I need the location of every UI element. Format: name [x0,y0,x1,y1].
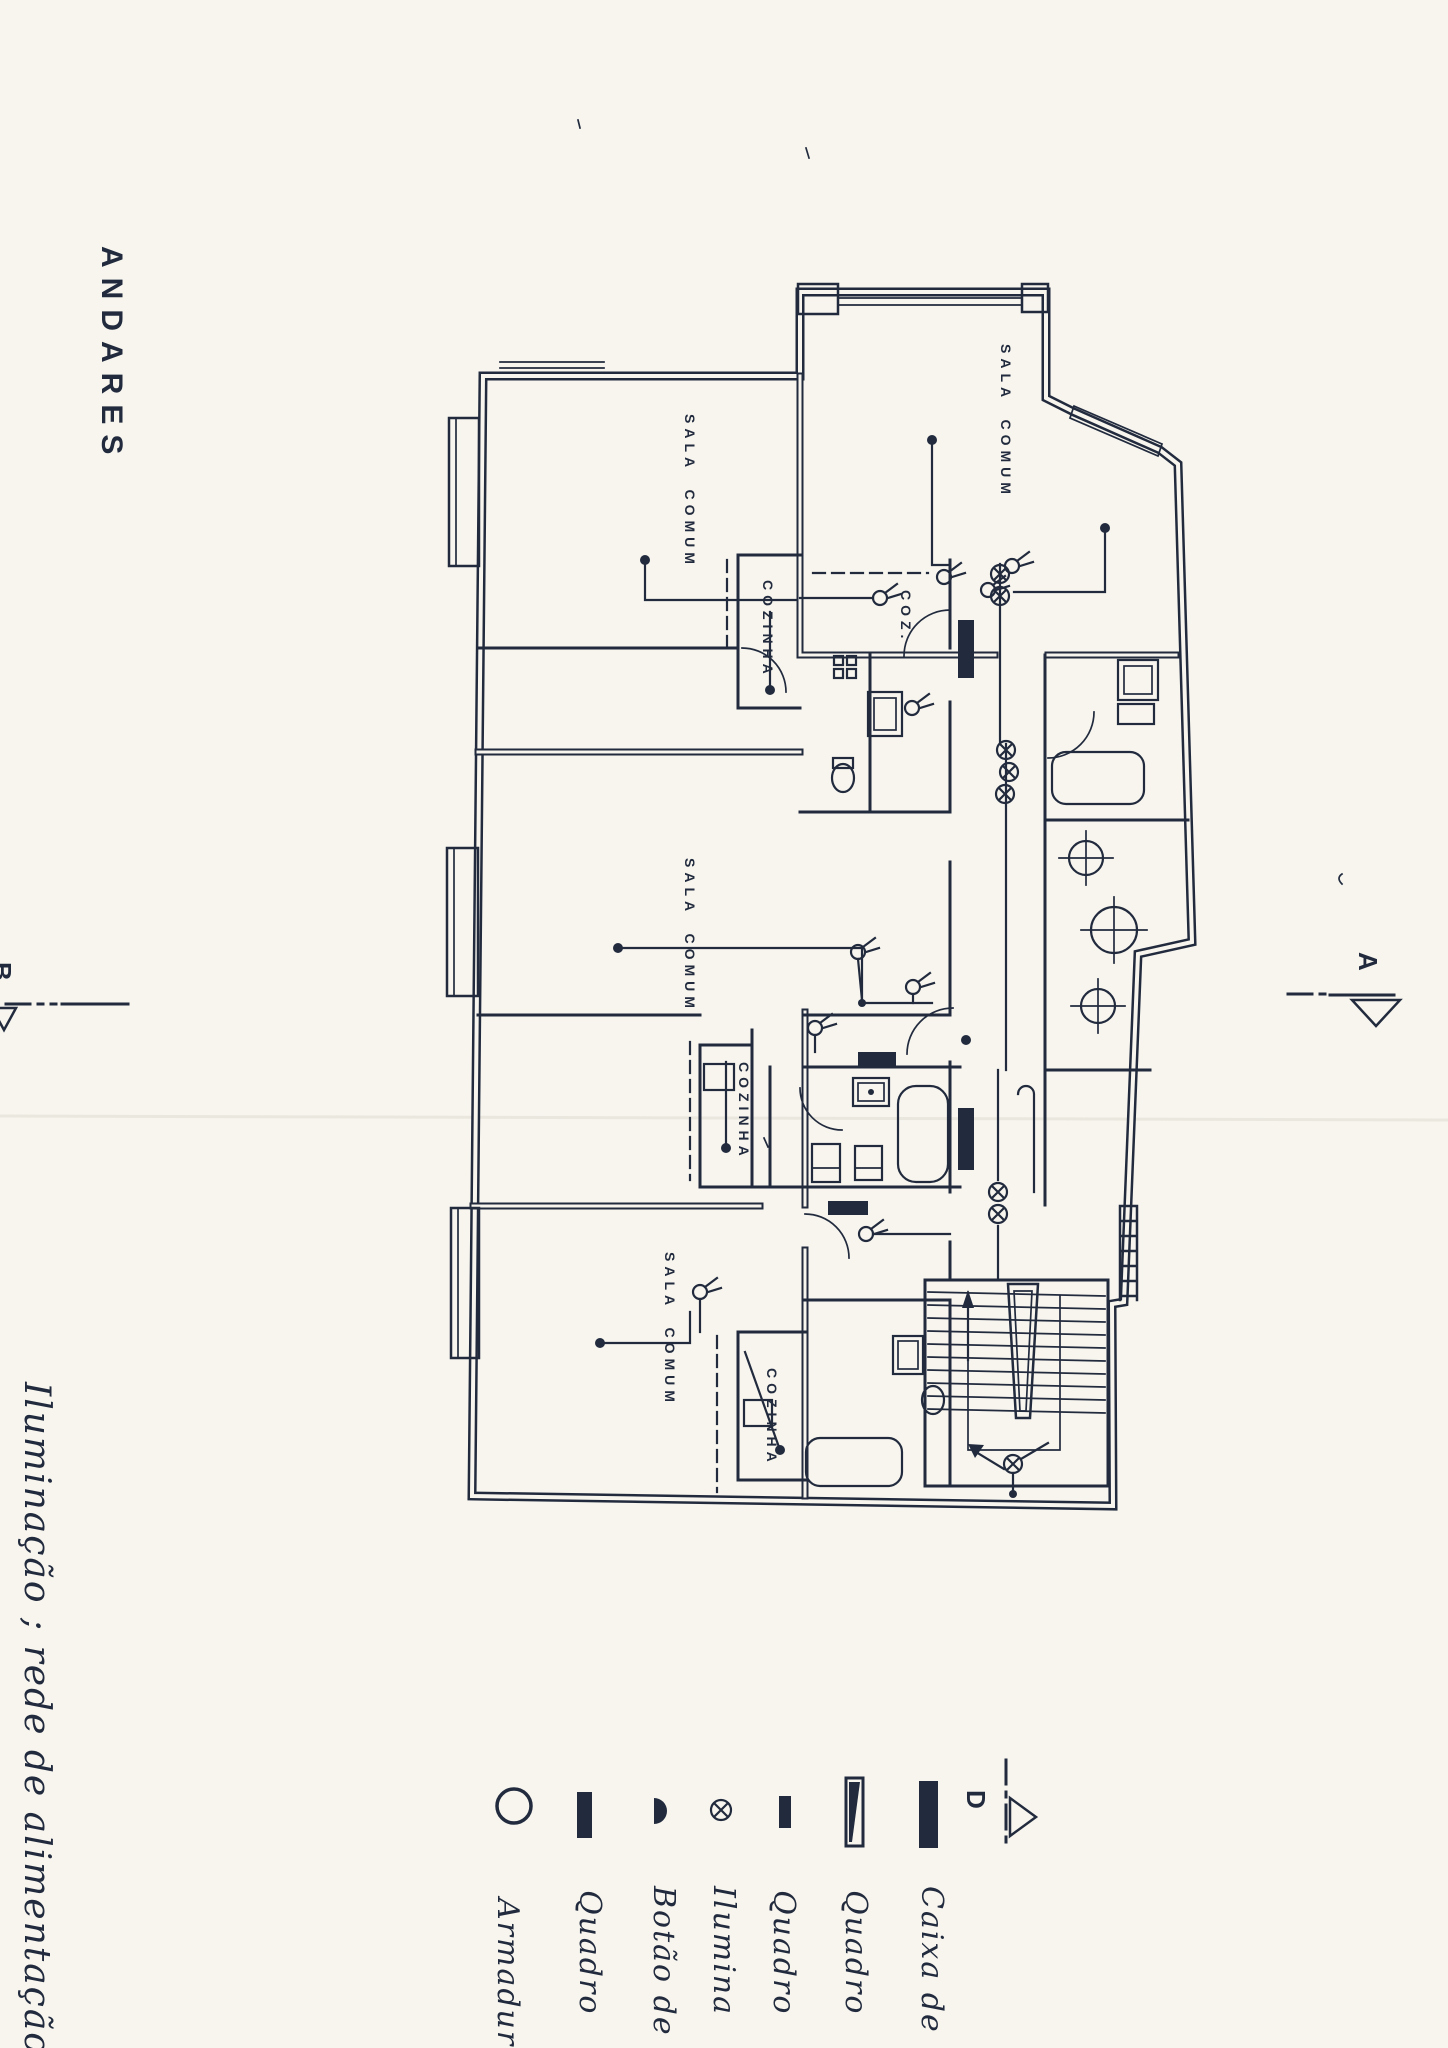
building-outline [472,292,1192,1506]
legend-label-caixa-de: Caixa de [914,1886,949,2034]
switch-icon [859,1220,887,1241]
legend-label-quadro-3: Quadro [838,1890,873,2015]
ceiling-light-crossed-circle-icon [711,1800,731,1820]
staircase [925,1206,1137,1486]
stair-light-with-arrows [968,1443,1048,1498]
ceiling-lamp-icon [989,1183,1007,1201]
section-line-D [1006,1760,1036,1845]
junction-box-thick-bar-icon [919,1781,938,1848]
pushbutton-half-circle-icon [654,1798,667,1824]
ceiling-lamp-icons [989,565,1018,1223]
legend-label-botao-de: Botão de [646,1886,681,2037]
section-marker-a-letter: A [1352,952,1383,971]
legend-label-quadro-2: Quadro [766,1890,801,2015]
switch-icon [693,1278,721,1299]
stair-treads [928,1292,1105,1450]
light-fixture-circle-icon [497,1789,531,1823]
section-line-A [1288,994,1400,1026]
switch-icon [905,694,933,715]
room-label-sala-comum-middle: SALA COMUM [682,858,698,1013]
room-label-coz-partial: COZ. [898,590,914,643]
legend-label-iluminacao: Ilumina [706,1886,741,2016]
section-marker-d-letter: D [960,1790,991,1809]
section-line-B [0,1004,128,1030]
panel-outline-bar-icon [846,1778,863,1846]
switch-icon [873,584,901,605]
room-label-cozinha-upper: COZINHA [760,580,776,679]
switch-icon [906,973,934,994]
legend-symbols [497,1778,938,1848]
room-label-sala-comum-upper-left: SALA COMUM [682,414,698,569]
structural-walls [473,376,1176,1496]
room-label-cozinha-middle: COZINHA [736,1062,752,1161]
scanned-floor-plan-sheet: ANDARES SALA COMUM SALA COMUM COZINHA CO… [0,0,1448,2048]
switch-icon [808,1014,836,1035]
room-label-cozinha-bottom: COZINHA [764,1368,780,1467]
panel-small-bar-icon [779,1796,791,1828]
section-marker-b-letter: B [0,962,17,981]
panel-solid-bar-icon [577,1792,592,1838]
room-label-sala-comum-top-right: SALA COMUM [998,344,1014,499]
interior-partitions [478,555,1188,1486]
floor-plan-drawing [0,0,1448,2048]
legend-label-quadro-1: Quadro [572,1890,607,2015]
ceiling-lamp-icon [989,1205,1007,1223]
room-label-sala-comum-bottom: SALA COMUM [662,1252,678,1407]
legend-label-armadura: Armadur [490,1898,525,2047]
sheet-caption: Iluminação ; rede de alimentação [16,1382,57,2048]
ceiling-lamp-icon [1000,763,1018,781]
fold-crease [0,1116,1448,1120]
sheet-title: ANDARES [94,246,128,464]
